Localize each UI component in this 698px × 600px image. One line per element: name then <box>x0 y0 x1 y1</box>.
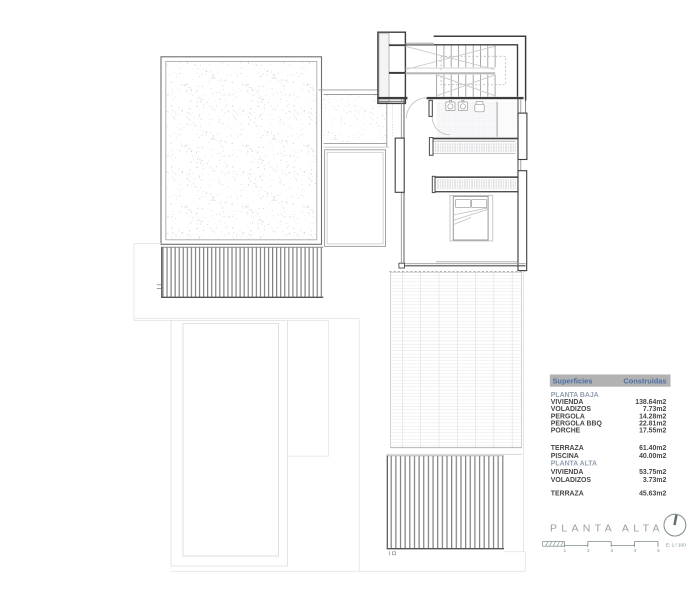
svg-text:E: 1 / 100: E: 1 / 100 <box>666 543 686 548</box>
svg-text:PERGOLA BBQ: PERGOLA BBQ <box>551 421 603 428</box>
svg-text:Superficies: Superficies <box>553 377 593 386</box>
svg-text:VOLADIZOS: VOLADIZOS <box>551 477 592 484</box>
svg-text:Construidas: Construidas <box>623 377 666 386</box>
svg-text:VIVIENDA: VIVIENDA <box>551 399 584 406</box>
svg-text:14.28m2: 14.28m2 <box>639 413 666 420</box>
svg-text:61.40m2: 61.40m2 <box>639 445 666 452</box>
svg-text:PLANTA BAJA: PLANTA BAJA <box>551 392 599 399</box>
svg-text:PLANTA ALTA: PLANTA ALTA <box>551 460 597 467</box>
svg-text:45.63m2: 45.63m2 <box>639 490 666 497</box>
svg-text:VOLADIZOS: VOLADIZOS <box>551 406 592 413</box>
svg-text:PISCINA: PISCINA <box>551 453 579 460</box>
svg-text:TERRAZA: TERRAZA <box>551 490 584 497</box>
svg-text:138.64m2: 138.64m2 <box>635 399 666 406</box>
svg-text:PLANTA ALTA: PLANTA ALTA <box>550 523 664 535</box>
svg-text:PORCHE: PORCHE <box>551 428 581 435</box>
svg-text:VIVIENDA: VIVIENDA <box>551 469 584 476</box>
svg-text:7.73m2: 7.73m2 <box>643 406 667 413</box>
svg-text:17.55m2: 17.55m2 <box>639 428 666 435</box>
svg-text:3.73m2: 3.73m2 <box>643 477 667 484</box>
svg-text:22.81m2: 22.81m2 <box>639 421 666 428</box>
svg-text:40.00m2: 40.00m2 <box>639 453 666 460</box>
svg-text:TERRAZA: TERRAZA <box>551 445 584 452</box>
svg-text:53.75m2: 53.75m2 <box>639 469 666 476</box>
svg-text:PERGOLA: PERGOLA <box>551 413 585 420</box>
